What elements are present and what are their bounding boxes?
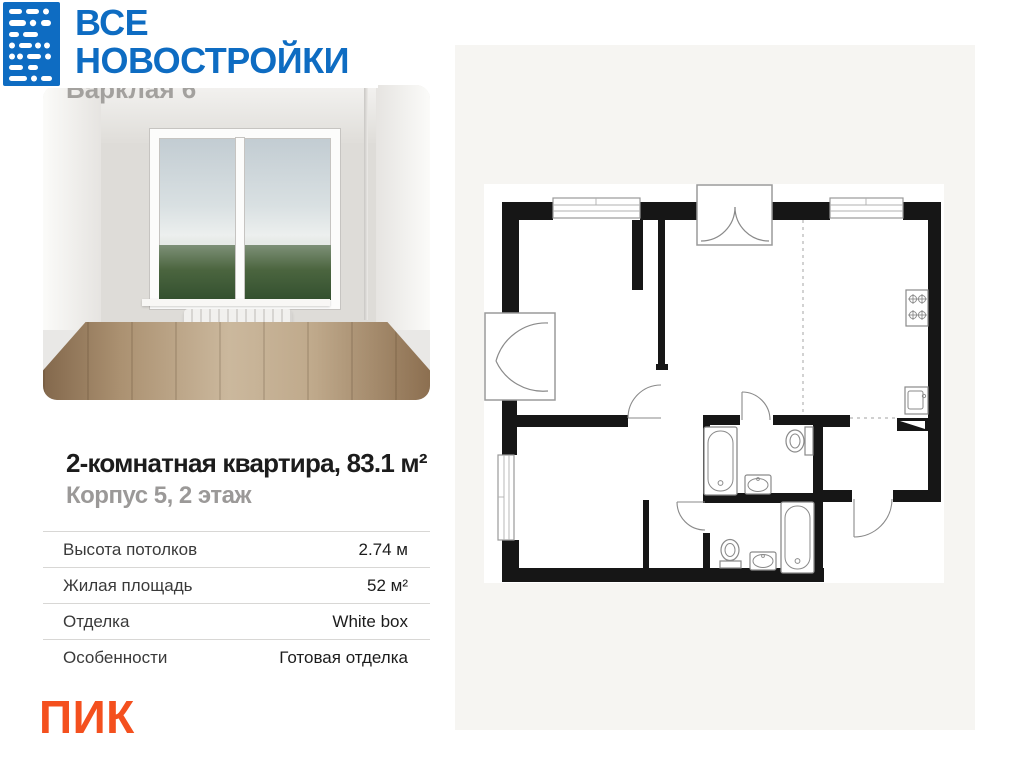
sink-icon [750, 552, 776, 570]
photo-treeline [159, 245, 331, 300]
photo-window [150, 129, 340, 309]
sink-icon [745, 475, 771, 494]
row-value: Готовая отделка [279, 648, 430, 668]
window-icon [553, 198, 640, 218]
kitchen-sink-icon [905, 387, 928, 414]
listing-subtitle: Корпус 5, 2 этаж [66, 482, 251, 510]
window-icon [830, 198, 903, 218]
row-value: 2.74 м [359, 540, 431, 560]
table-row: Высота потолков 2.74 м [43, 531, 430, 567]
vse-novostroyki-logo-icon [3, 2, 60, 86]
zone-dashed-lines [803, 220, 895, 418]
table-row: Отделка White box [43, 603, 430, 639]
brand-line1: ВСЕ [75, 4, 349, 42]
row-label: Особенности [43, 648, 167, 668]
bathtub-icon [781, 502, 814, 573]
brand-line2: НОВОСТРОЙКИ [75, 42, 349, 80]
apartment-photo [43, 85, 430, 400]
bathtub-icon [704, 427, 737, 495]
photo-left-wall [43, 85, 101, 330]
kitchen-fixtures [905, 290, 928, 414]
photo-window-mullion [236, 138, 244, 300]
floorplan-svg [484, 184, 944, 583]
bathroom1-door-icon [742, 392, 770, 420]
bathroom2-door-icon [677, 502, 705, 530]
row-label: Высота потолков [43, 540, 197, 560]
details-table: Высота потолков 2.74 м Жилая площадь 52 … [43, 531, 430, 675]
pik-developer-logo: ПИК [39, 690, 135, 744]
windows [498, 198, 903, 540]
bathroom2-fixtures [720, 502, 814, 573]
row-label: Отделка [43, 612, 129, 632]
stove-icon [906, 290, 928, 326]
table-row: Особенности Готовая отделка [43, 639, 430, 675]
table-row: Жилая площадь 52 м² [43, 567, 430, 603]
brand-logo: ВСЕ НОВОСТРОЙКИ [0, 0, 378, 88]
window-icon [498, 455, 514, 540]
entrance-double-door-icon [697, 185, 772, 245]
balcony-double-door-icon [485, 313, 555, 400]
room1-door-icon [628, 385, 661, 418]
photo-wood-floor [43, 322, 430, 400]
listing-card-page: Барклая 6 ВСЕ НОВОСТРОЙКИ 2-комнатная кв… [0, 0, 1024, 768]
door-swings [628, 385, 892, 537]
photo-pipe [364, 85, 368, 320]
listing-title: 2-комнатная квартира, 83.1 м² [66, 448, 427, 479]
row-value: 52 м² [367, 576, 430, 596]
photo-windowsill [142, 299, 330, 306]
walls [502, 202, 941, 582]
toilet-icon [786, 427, 813, 455]
floorplan-card [455, 45, 975, 730]
brand-logo-text: ВСЕ НОВОСТРОЙКИ [75, 4, 349, 80]
bathroom1-fixtures [704, 427, 813, 495]
floorplan-canvas [484, 184, 944, 583]
row-label: Жилая площадь [43, 576, 192, 596]
photo-right-wall [376, 85, 430, 330]
hallway-door-icon [854, 499, 892, 537]
window-glazing-lines [498, 198, 903, 540]
toilet-icon [720, 540, 741, 569]
row-value: White box [332, 612, 430, 632]
